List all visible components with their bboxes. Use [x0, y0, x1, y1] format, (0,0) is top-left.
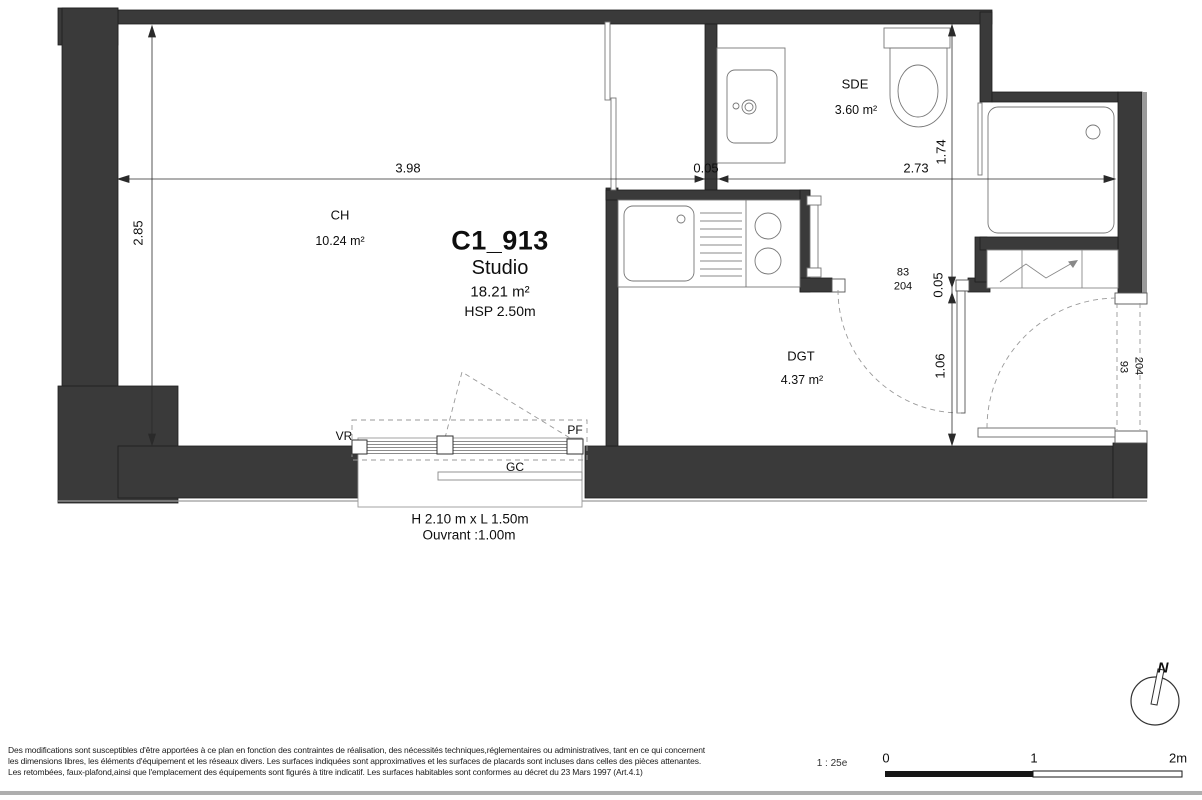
- dim-sde-depth: 1.74: [935, 139, 948, 164]
- footer-line-3: Les retombées, faux-plafond,ainsi que l'…: [8, 767, 643, 777]
- dim-dgt-wall: 0.05: [932, 272, 945, 297]
- window-opening: Ouvrant :1.00m: [422, 528, 515, 542]
- floor-plan-page: C1_913 Studio 18.21 m² HSP 2.50m CH 10.2…: [0, 0, 1202, 800]
- interior-door-width: 83: [897, 268, 909, 279]
- scale-ratio: 1 : 25e: [817, 759, 848, 769]
- right-wall-outer-edge: [1142, 92, 1147, 295]
- footer-line-2: les dimensions libres, les éléments d'éq…: [8, 756, 701, 766]
- entrance-door-width: 93: [1118, 361, 1129, 373]
- room-label-dgt: DGT: [787, 350, 814, 363]
- north-compass-icon: [1131, 669, 1179, 725]
- sliding-door: [605, 22, 616, 190]
- unit-ceiling: HSP 2.50m: [464, 304, 535, 318]
- floor-plan-drawing: [0, 0, 1202, 800]
- dim-dgt-height: 1.06: [934, 353, 947, 378]
- room-area-sde: 3.60 m²: [835, 104, 877, 117]
- dim-ch-width: 3.98: [395, 162, 420, 175]
- entrance-threshold: [978, 428, 1115, 437]
- window-assembly: [352, 372, 587, 507]
- scale-tick-2: 2m: [1169, 752, 1187, 765]
- room-area-ch: 10.24 m²: [315, 235, 364, 248]
- room-area-dgt: 4.37 m²: [781, 374, 823, 387]
- shower: [978, 103, 1114, 233]
- window-label-vr: VR: [336, 430, 353, 442]
- unit-type: Studio: [472, 258, 529, 278]
- footer-line-1: Des modifications sont susceptibles d'êt…: [8, 745, 705, 755]
- north-label: N: [1158, 661, 1169, 676]
- closet-water-heater: [987, 250, 1118, 288]
- door-swings: [838, 290, 1140, 430]
- dim-partition: 0.05: [693, 162, 718, 175]
- dim-sde-width: 2.73: [903, 162, 928, 175]
- washbasin: [717, 48, 785, 163]
- entrance-door-height: 204: [1133, 357, 1144, 375]
- room-label-sde: SDE: [842, 78, 869, 91]
- door-jambs: [832, 279, 1147, 443]
- kitchenette: [618, 200, 800, 287]
- interior-door-leaf: [957, 291, 965, 413]
- scale-tick-0: 0: [882, 752, 889, 765]
- scale-bar: [885, 771, 1182, 777]
- unit-area: 18.21 m²: [470, 285, 529, 300]
- window-label-gc: GC: [506, 461, 524, 473]
- interior-door-height: 204: [894, 282, 912, 293]
- dim-ch-depth: 2.85: [132, 220, 145, 245]
- scale-tick-1: 1: [1030, 752, 1037, 765]
- footer-divider: [0, 791, 1202, 795]
- window-size: H 2.10 m x L 1.50m: [411, 512, 528, 526]
- room-label-ch: CH: [331, 209, 350, 222]
- window-label-pf: PF: [567, 424, 582, 436]
- unit-id: C1_913: [451, 228, 549, 255]
- toilet: [884, 28, 950, 127]
